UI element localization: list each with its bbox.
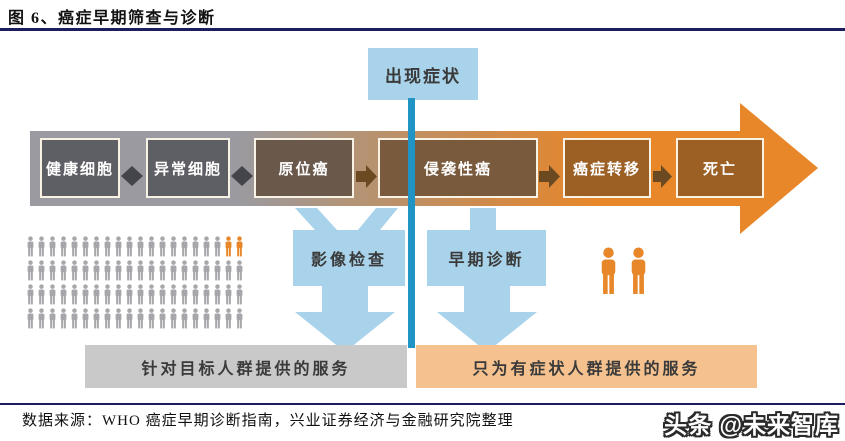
person-icon (59, 308, 68, 329)
person-icon-gray (125, 236, 134, 257)
person-icon-gray (235, 284, 244, 305)
person-icon-gray (70, 236, 79, 257)
person-icon-gray (59, 260, 68, 281)
person-icon (103, 284, 112, 305)
person-icon (180, 260, 189, 281)
person-icon-gray (26, 308, 35, 329)
person-icon (37, 308, 46, 329)
person-icon (26, 236, 35, 257)
person-icon (224, 308, 233, 329)
person-icon (169, 308, 178, 329)
person-icon (224, 284, 233, 305)
person-icon-gray (213, 236, 222, 257)
person-icon (213, 284, 222, 305)
person-icon-gray (37, 308, 46, 329)
person-icon-gray (191, 260, 200, 281)
person-icon (136, 308, 145, 329)
person-icon-gray (169, 236, 178, 257)
person-icon (125, 260, 134, 281)
person-icon (191, 284, 200, 305)
person-icon-gray (81, 284, 90, 305)
down-arrow-diagnosis (437, 286, 537, 352)
person-icon-orange-large (628, 247, 649, 295)
person-icon (191, 260, 200, 281)
person-icon (81, 284, 90, 305)
person-icon (628, 247, 649, 295)
person-icon (81, 236, 90, 257)
person-icon (92, 236, 101, 257)
person-icon-gray (48, 308, 57, 329)
person-icon-gray (169, 284, 178, 305)
person-icon (180, 308, 189, 329)
target-population-service-bar: 针对目标人群提供的服务 (85, 345, 407, 388)
person-icon (125, 284, 134, 305)
symptomatic-service-bar: 只为有症状人群提供的服务 (416, 345, 757, 388)
person-icon (37, 236, 46, 257)
person-icon (235, 236, 244, 257)
person-icon-gray (191, 308, 200, 329)
person-icon-gray (81, 236, 90, 257)
person-icon-gray (158, 308, 167, 329)
person-icon-gray (147, 236, 156, 257)
person-icon (147, 236, 156, 257)
person-icon-gray (103, 236, 112, 257)
person-icon-gray (92, 308, 101, 329)
person-icon (213, 236, 222, 257)
stage-box-carcinoma-in-situ: 原位癌 (254, 138, 354, 198)
person-icon-orange (224, 236, 233, 257)
population-row (26, 260, 244, 281)
person-icon-gray (224, 260, 233, 281)
person-icon-gray (202, 308, 211, 329)
person-icon (70, 236, 79, 257)
person-icon-orange (235, 236, 244, 257)
person-icon (59, 284, 68, 305)
person-icon-gray (103, 284, 112, 305)
person-icon-gray (59, 284, 68, 305)
person-icon-gray (81, 260, 90, 281)
person-icon-gray (59, 236, 68, 257)
person-icon (59, 260, 68, 281)
person-icon-gray (37, 284, 46, 305)
person-icon-gray (147, 284, 156, 305)
person-icon (37, 284, 46, 305)
person-icon-gray (37, 260, 46, 281)
person-icon (103, 236, 112, 257)
person-icon (147, 260, 156, 281)
person-icon (158, 308, 167, 329)
symptom-onset-box: 出现症状 (368, 48, 478, 100)
person-icon-gray (114, 260, 123, 281)
person-icon (235, 284, 244, 305)
person-icon (48, 284, 57, 305)
person-icon-gray (92, 260, 101, 281)
person-icon (235, 260, 244, 281)
person-icon-gray (48, 236, 57, 257)
person-icon (103, 260, 112, 281)
person-icon-gray (37, 236, 46, 257)
person-icon-orange-large (598, 247, 619, 295)
person-icon (169, 236, 178, 257)
person-icon-gray (202, 284, 211, 305)
person-icon-gray (48, 260, 57, 281)
stage-box-invasive-cancer: 侵袭性癌 (378, 138, 538, 198)
person-icon (114, 236, 123, 257)
person-icon (202, 260, 211, 281)
person-icon (169, 260, 178, 281)
connector-stub (470, 208, 496, 230)
person-icon (191, 236, 200, 257)
person-icon-gray (202, 236, 211, 257)
person-icon-gray (191, 236, 200, 257)
person-icon (235, 308, 244, 329)
imaging-check-box: 影像检查 (293, 230, 405, 286)
person-icon-gray (92, 284, 101, 305)
person-icon-gray (147, 260, 156, 281)
person-icon (158, 236, 167, 257)
person-icon-gray (114, 236, 123, 257)
person-icon (158, 284, 167, 305)
person-icon (70, 260, 79, 281)
person-icon (136, 260, 145, 281)
person-icon (59, 236, 68, 257)
person-icon (224, 236, 233, 257)
person-icon (81, 260, 90, 281)
person-icon-gray (224, 308, 233, 329)
person-icon-gray (92, 236, 101, 257)
person-icon-gray (125, 284, 134, 305)
person-icon (92, 284, 101, 305)
person-icon (213, 260, 222, 281)
person-icon (224, 260, 233, 281)
funnel-connector-right (358, 208, 398, 230)
person-icon (147, 308, 156, 329)
stage-box-abnormal-cells: 异常细胞 (146, 138, 230, 198)
person-icon-gray (136, 260, 145, 281)
person-icon-gray (158, 236, 167, 257)
person-icon-gray (213, 284, 222, 305)
person-icon-gray (224, 284, 233, 305)
person-icon-gray (169, 308, 178, 329)
person-icon-gray (158, 284, 167, 305)
stage-box-metastasis: 癌症转移 (563, 138, 651, 198)
symptom-divider-line (408, 98, 415, 348)
person-icon (180, 236, 189, 257)
person-icon-gray (103, 260, 112, 281)
person-icon-gray (169, 260, 178, 281)
person-icon-gray (70, 284, 79, 305)
person-icon (202, 236, 211, 257)
person-icon-gray (103, 308, 112, 329)
person-icon (92, 308, 101, 329)
person-icon-gray (81, 308, 90, 329)
person-icon (81, 308, 90, 329)
population-icons (26, 236, 244, 332)
person-icon-gray (180, 236, 189, 257)
person-icon (180, 284, 189, 305)
person-icon (70, 284, 79, 305)
person-icon (136, 236, 145, 257)
figure-page: 图 6、癌症早期筛查与诊断 出现症状 健康细胞 异常细胞 (0, 0, 845, 441)
person-icon (125, 308, 134, 329)
watermark-toutiao: 头条 @未来智库 (664, 406, 839, 440)
person-icon-gray (180, 284, 189, 305)
funnel-connector-left (295, 208, 337, 230)
person-icon-gray (213, 260, 222, 281)
person-icon (147, 284, 156, 305)
person-icon (213, 308, 222, 329)
person-icon-gray (26, 260, 35, 281)
person-icon-gray (114, 284, 123, 305)
person-icon (125, 236, 134, 257)
stage-box-healthy-cells: 健康细胞 (40, 138, 120, 198)
person-icon (26, 308, 35, 329)
person-icon-gray (213, 308, 222, 329)
person-icon-gray (26, 236, 35, 257)
population-row (26, 236, 244, 257)
person-icon-gray (180, 260, 189, 281)
person-icon-gray (136, 236, 145, 257)
person-icon (114, 308, 123, 329)
early-diagnosis-box: 早期诊断 (427, 230, 546, 286)
person-icon (48, 236, 57, 257)
person-icon-gray (48, 284, 57, 305)
person-icon-gray (114, 308, 123, 329)
person-icon (48, 260, 57, 281)
person-icon-gray (26, 284, 35, 305)
person-icon (191, 308, 200, 329)
person-icon-gray (125, 308, 134, 329)
population-row (26, 308, 244, 329)
person-icon-gray (147, 308, 156, 329)
person-icon (26, 284, 35, 305)
person-icon-gray (70, 308, 79, 329)
person-icon (202, 284, 211, 305)
person-icon (26, 260, 35, 281)
person-icon (114, 260, 123, 281)
down-arrow-imaging (295, 286, 395, 352)
person-icon-gray (125, 260, 134, 281)
person-icon (92, 260, 101, 281)
person-icon (202, 308, 211, 329)
person-icon (70, 308, 79, 329)
person-icon-gray (59, 308, 68, 329)
person-icon-gray (191, 284, 200, 305)
person-icon (169, 284, 178, 305)
population-row (26, 284, 244, 305)
person-icon-gray (235, 308, 244, 329)
person-icon (103, 308, 112, 329)
symptomatic-pair-icons (598, 247, 649, 295)
person-icon (114, 284, 123, 305)
person-icon (37, 260, 46, 281)
person-icon (158, 260, 167, 281)
person-icon (48, 308, 57, 329)
stage-box-death: 死亡 (676, 138, 764, 198)
person-icon-gray (136, 308, 145, 329)
person-icon (136, 284, 145, 305)
person-icon (598, 247, 619, 295)
person-icon-gray (70, 260, 79, 281)
person-icon-gray (202, 260, 211, 281)
person-icon-gray (180, 308, 189, 329)
person-icon-gray (136, 284, 145, 305)
person-icon-gray (235, 260, 244, 281)
person-icon-gray (158, 260, 167, 281)
